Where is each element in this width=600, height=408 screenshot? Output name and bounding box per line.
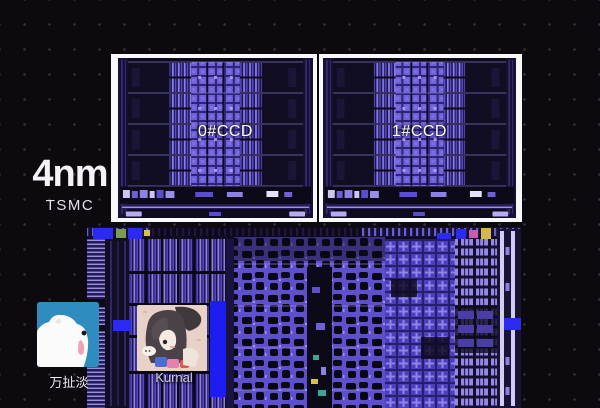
ccd0-highlight-frame: 0#CCD	[111, 54, 317, 222]
author-watermark: Kurnal	[130, 370, 218, 385]
iod-blue-block-left	[113, 320, 131, 331]
ccd1-highlight-frame: 1#CCD	[319, 54, 522, 222]
iod-blue-block-right	[504, 318, 521, 330]
foundry-label: TSMC	[18, 197, 122, 214]
die-shot-image: 4nm TSMC 0#CCD 1#CCD	[0, 0, 600, 408]
uploader-watermark: 万扯淡	[24, 372, 114, 391]
anime-girl-avatar-icon	[137, 305, 207, 371]
ccd1-label: 1#CCD	[392, 123, 447, 141]
ccd0-label: 0#CCD	[198, 123, 253, 141]
kurnal-avatar	[137, 305, 207, 371]
bear-avatar	[37, 302, 99, 367]
polar-bear-avatar-icon	[37, 302, 99, 367]
process-node-label: 4nm	[18, 155, 122, 193]
process-node-annotation: 4nm TSMC	[18, 155, 122, 214]
